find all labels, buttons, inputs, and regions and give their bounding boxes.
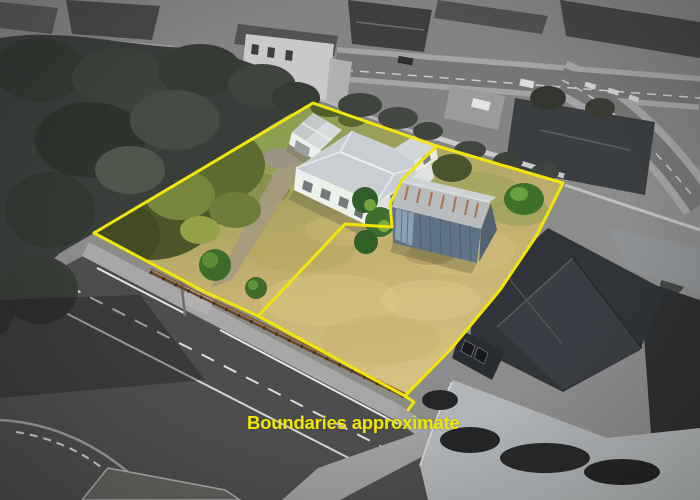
caption-text: Boundaries approximate [247, 412, 467, 434]
aerial-photo: Boundaries approximate [0, 0, 700, 500]
